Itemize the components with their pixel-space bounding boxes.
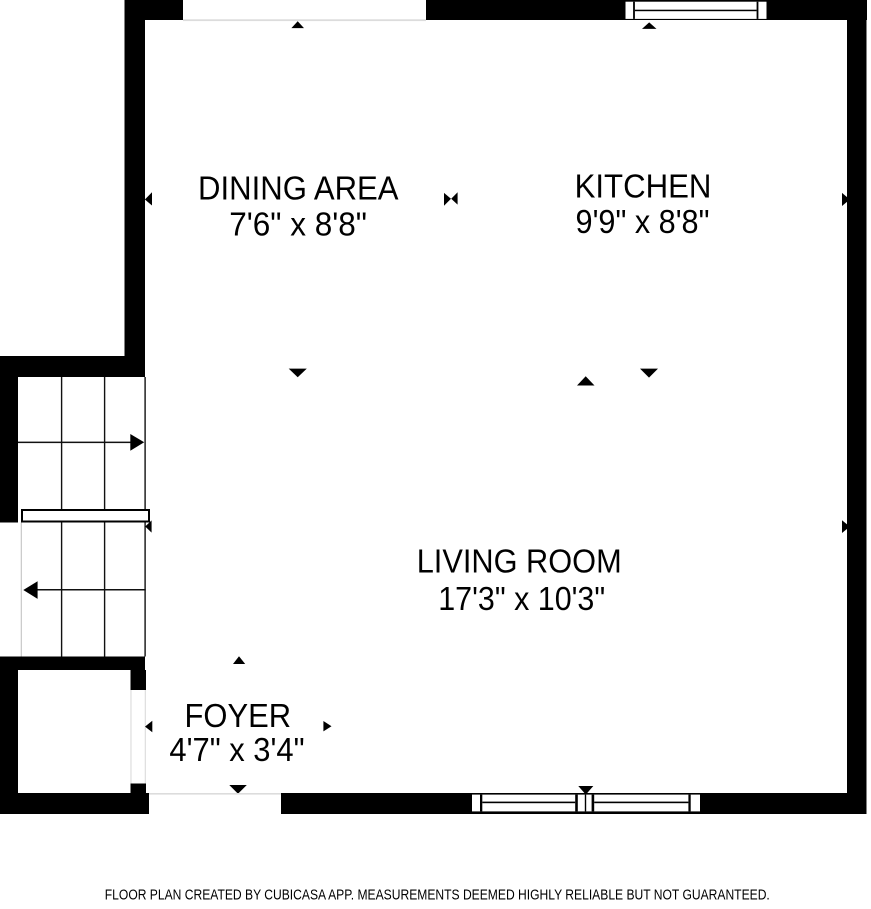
- svg-text:9'9" x 8'8": 9'9" x 8'8": [576, 203, 710, 240]
- svg-text:FLOOR PLAN CREATED BY CUBICASA: FLOOR PLAN CREATED BY CUBICASA APP. MEAS…: [105, 887, 770, 904]
- svg-text:17'3" x 10'3": 17'3" x 10'3": [438, 580, 605, 617]
- svg-text:KITCHEN: KITCHEN: [575, 168, 712, 205]
- svg-text:DINING AREA: DINING AREA: [198, 170, 399, 207]
- svg-text:4'7" x 3'4": 4'7" x 3'4": [169, 731, 304, 768]
- svg-text:LIVING ROOM: LIVING ROOM: [417, 543, 622, 580]
- svg-text:7'6" x 8'8": 7'6" x 8'8": [229, 206, 367, 243]
- svg-text:FOYER: FOYER: [185, 697, 292, 734]
